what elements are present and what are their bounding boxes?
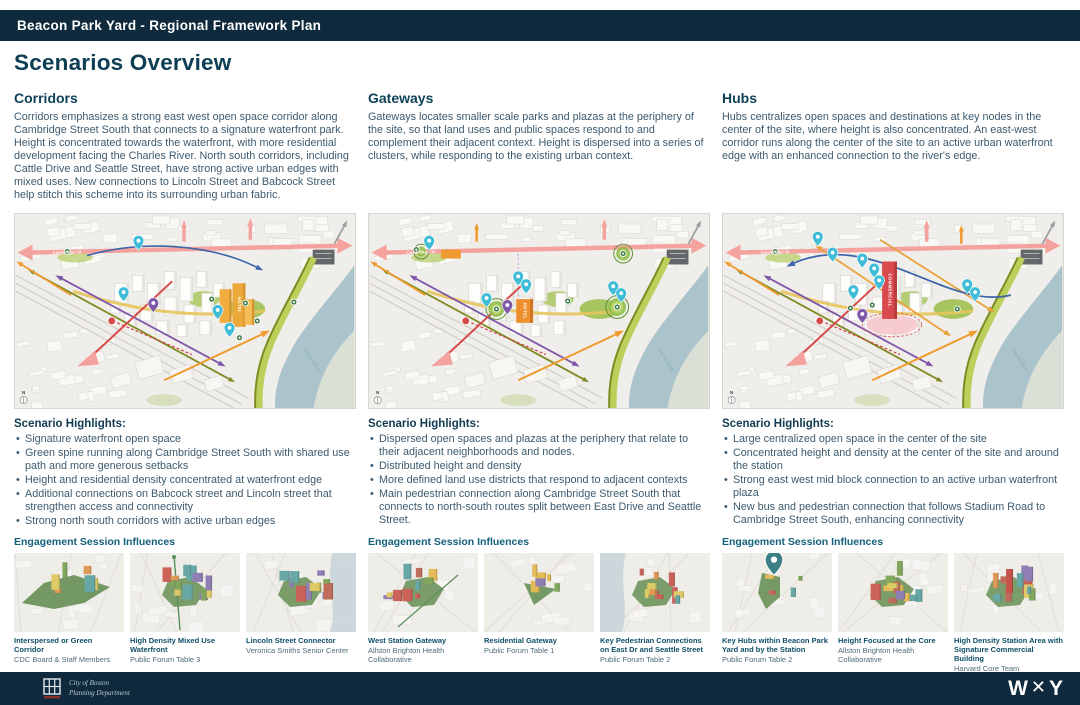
engagement-caption: Key Hubs within Beacon Park Yard and by … bbox=[722, 637, 832, 673]
column-title: Corridors bbox=[14, 90, 356, 111]
engagement-block: Engagement Session Influences Key Hubs w… bbox=[722, 536, 1064, 673]
engagement-thumb-image bbox=[130, 553, 240, 632]
engagement-thumb-image bbox=[484, 553, 594, 632]
highlight-item: Large centralized open space in the cent… bbox=[722, 433, 1064, 446]
wxy-logo: W ✕ Y bbox=[1008, 677, 1064, 701]
scenario-columns: Corridors Corridors emphasizes a strong … bbox=[14, 90, 1064, 673]
caption-source: Allston Brighton Health Collaborative bbox=[838, 647, 948, 665]
org-line-2: Planning Department bbox=[69, 689, 130, 699]
engagement-caption: Height Focused at the Core Allston Brigh… bbox=[838, 637, 948, 673]
map-compass-label: N bbox=[376, 390, 379, 395]
engagement-caption: Interspersed or Green Corridor CDC Board… bbox=[14, 637, 124, 665]
engagement-captions: Key Hubs within Beacon Park Yard and by … bbox=[722, 637, 1064, 673]
caption-source: Public Forum Table 2 bbox=[722, 656, 832, 665]
caption-source: Allston Brighton Health Collaborative bbox=[368, 647, 478, 665]
column-title: Hubs bbox=[722, 90, 1064, 111]
caption-title: High Density Station Area with Signature… bbox=[954, 637, 1064, 664]
engagement-captions: Interspersed or Green Corridor CDC Board… bbox=[14, 637, 356, 665]
highlight-item: Strong east west mid block connection to… bbox=[722, 474, 1064, 500]
engagement-thumbnails bbox=[368, 553, 710, 632]
scenario-highlights-block: Scenario Highlights: Signature waterfron… bbox=[14, 409, 356, 536]
column-description: Corridors emphasizes a strong east west … bbox=[14, 111, 356, 213]
scenario-highlights-heading: Scenario Highlights: bbox=[14, 418, 356, 430]
caption-source: Public Forum Table 1 bbox=[484, 647, 594, 656]
caption-title: Residential Gateway bbox=[484, 637, 594, 646]
highlight-item: Signature waterfront open space bbox=[14, 433, 356, 446]
map-street-label: Cambridge St bbox=[53, 249, 83, 255]
engagement-caption: Lincoln Street Connector Veronica Smiths… bbox=[246, 637, 356, 665]
org-line-1: City of Boston bbox=[69, 679, 130, 689]
scenario-map-corridors-image: Cambridge St Charles River HOTEL N bbox=[14, 213, 356, 409]
brand-y: Y bbox=[1049, 677, 1064, 701]
caption-source: CDC Board & Staff Members bbox=[14, 656, 124, 665]
engagement-captions: West Station Gateway Allston Brighton He… bbox=[368, 637, 710, 665]
scenario-highlights-block: Scenario Highlights: Large centralized o… bbox=[722, 409, 1064, 536]
engagement-thumb-image bbox=[722, 553, 832, 632]
scenario-highlights-heading: Scenario Highlights: bbox=[368, 418, 710, 430]
highlight-item: Dispersed open spaces and plazas at the … bbox=[368, 433, 710, 459]
caption-title: Key Hubs within Beacon Park Yard and by … bbox=[722, 637, 832, 655]
highlight-item: More defined land use districts that res… bbox=[368, 474, 710, 487]
caption-title: West Station Gateway bbox=[368, 637, 478, 646]
column-hubs: Hubs Hubs centralizes open spaces and de… bbox=[722, 90, 1064, 673]
highlights-list: Signature waterfront open space Green sp… bbox=[14, 433, 356, 528]
engagement-thumb-image bbox=[246, 553, 356, 632]
engagement-caption: West Station Gateway Allston Brighton He… bbox=[368, 637, 478, 665]
caption-title: Key Pedestrian Connections on East Dr an… bbox=[600, 637, 710, 655]
caption-source: Public Forum Table 3 bbox=[130, 656, 240, 665]
engagement-heading: Engagement Session Influences bbox=[14, 536, 356, 548]
highlight-item: Distributed height and density bbox=[368, 460, 710, 473]
caption-source: Veronica Smiths Senior Center bbox=[246, 647, 356, 656]
column-title: Gateways bbox=[368, 90, 710, 111]
document-page: Beacon Park Yard - Regional Framework Pl… bbox=[0, 0, 1080, 705]
map-tower-label: HOTEL bbox=[237, 297, 242, 314]
highlight-item: New bus and pedestrian connection that f… bbox=[722, 501, 1064, 527]
city-of-boston-logo-icon bbox=[42, 678, 62, 699]
city-logo-text: City of Boston Planning Department bbox=[69, 679, 130, 699]
column-gateways: Gateways Gateways locates smaller scale … bbox=[368, 90, 710, 673]
engagement-caption: High Density Mixed Use Waterfront Public… bbox=[130, 637, 240, 665]
scenario-map-gateways-image: Cambridge St Charles River HOTEL N bbox=[368, 213, 710, 409]
caption-title: Lincoln Street Connector bbox=[246, 637, 356, 646]
header-bar: Beacon Park Yard - Regional Framework Pl… bbox=[0, 10, 1080, 41]
caption-source: Public Forum Table 2 bbox=[600, 656, 710, 665]
engagement-caption: Residential Gateway Public Forum Table 1 bbox=[484, 637, 594, 665]
engagement-thumb-image bbox=[600, 553, 710, 632]
highlights-list: Large centralized open space in the cent… bbox=[722, 433, 1064, 527]
highlight-item: Concentrated height and density at the c… bbox=[722, 447, 1064, 473]
engagement-thumb-image bbox=[368, 553, 478, 632]
page-title: Scenarios Overview bbox=[14, 50, 231, 76]
engagement-caption: Key Pedestrian Connections on East Dr an… bbox=[600, 637, 710, 665]
brand-x-icon: ✕ bbox=[1031, 677, 1047, 698]
highlights-list: Dispersed open spaces and plazas at the … bbox=[368, 433, 710, 527]
caption-title: Interspersed or Green Corridor bbox=[14, 637, 124, 655]
header-title: Beacon Park Yard - Regional Framework Pl… bbox=[0, 18, 321, 33]
scenario-highlights-heading: Scenario Highlights: bbox=[722, 418, 1064, 430]
engagement-thumb-image bbox=[954, 553, 1064, 632]
column-corridors: Corridors Corridors emphasizes a strong … bbox=[14, 90, 356, 673]
footer-bar: City of Boston Planning Department W ✕ Y bbox=[0, 672, 1080, 705]
city-logo: City of Boston Planning Department bbox=[42, 678, 130, 699]
scenario-highlights-block: Scenario Highlights: Dispersed open spac… bbox=[368, 409, 710, 536]
highlight-item: Additional connections on Babcock street… bbox=[14, 488, 356, 514]
engagement-thumb-image bbox=[838, 553, 948, 632]
map-compass-label: N bbox=[730, 390, 733, 395]
engagement-caption: High Density Station Area with Signature… bbox=[954, 637, 1064, 673]
scenario-map-hubs-image: Cambridge St Charles River COMMERCIAL N bbox=[722, 213, 1064, 409]
column-description: Hubs centralizes open spaces and destina… bbox=[722, 111, 1064, 213]
map-street-label: Cambridge St bbox=[761, 249, 791, 255]
engagement-heading: Engagement Session Influences bbox=[368, 536, 710, 548]
engagement-thumbnails bbox=[14, 553, 356, 632]
caption-title: Height Focused at the Core bbox=[838, 637, 948, 646]
highlight-item: Strong north south corridors with active… bbox=[14, 515, 356, 528]
column-description: Gateways locates smaller scale parks and… bbox=[368, 111, 710, 213]
map-street-label: Cambridge St bbox=[407, 249, 437, 255]
map-tower-label: COMMERCIAL bbox=[888, 273, 893, 306]
engagement-block: Engagement Session Influences West Stati… bbox=[368, 536, 710, 665]
caption-title: High Density Mixed Use Waterfront bbox=[130, 637, 240, 655]
map-compass-label: N bbox=[22, 390, 25, 395]
engagement-heading: Engagement Session Influences bbox=[722, 536, 1064, 548]
highlight-item: Height and residential density concentra… bbox=[14, 474, 356, 487]
map-tower-label: HOTEL bbox=[523, 303, 528, 320]
highlight-item: Green spine running along Cambridge Stre… bbox=[14, 447, 356, 473]
engagement-block: Engagement Session Influences Interspers… bbox=[14, 536, 356, 665]
brand-w: W bbox=[1008, 677, 1029, 701]
highlight-item: Main pedestrian connection along Cambrid… bbox=[368, 488, 710, 527]
engagement-thumbnails bbox=[722, 553, 1064, 632]
engagement-thumb-image bbox=[14, 553, 124, 632]
